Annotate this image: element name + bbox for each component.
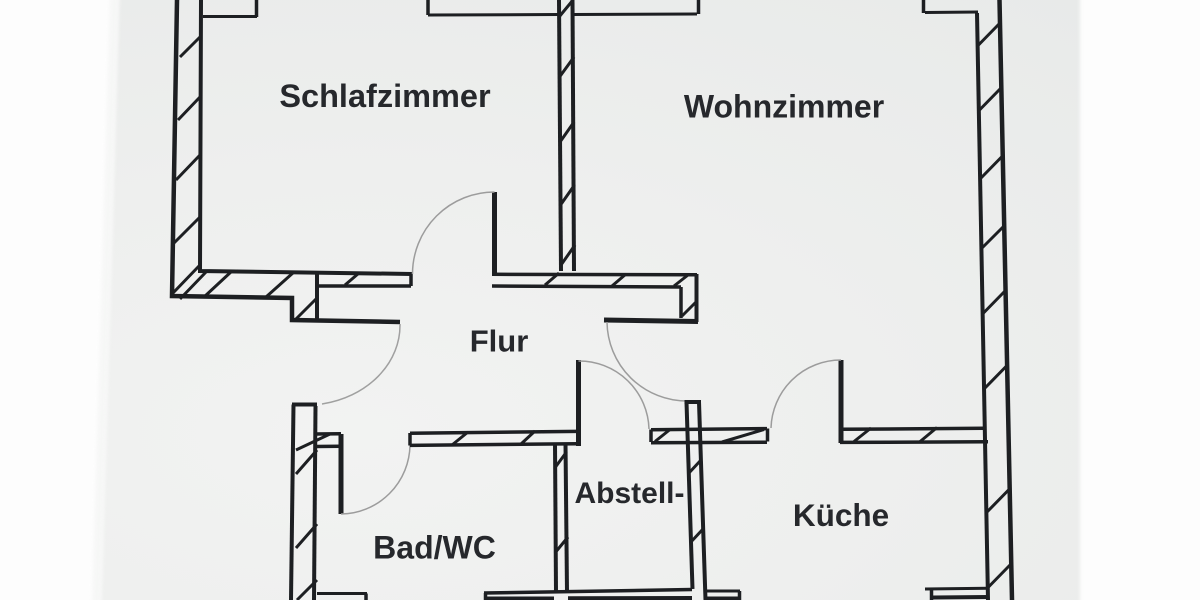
svg-text:Abstell-: Abstell- bbox=[574, 477, 684, 510]
svg-text:Schlafzimmer: Schlafzimmer bbox=[279, 78, 491, 114]
svg-text:Flur: Flur bbox=[470, 324, 529, 359]
svg-text:Küche: Küche bbox=[793, 497, 889, 533]
svg-text:Bad/WC: Bad/WC bbox=[373, 530, 496, 566]
svg-text:Wohnzimmer: Wohnzimmer bbox=[684, 89, 884, 125]
